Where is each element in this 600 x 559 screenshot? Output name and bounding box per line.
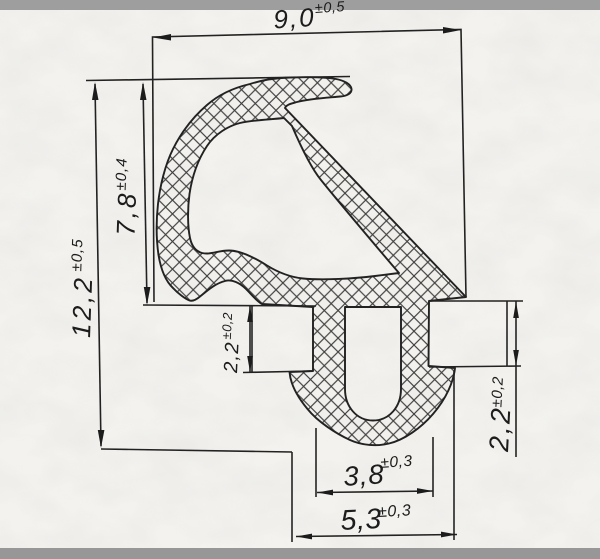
svg-text:2,2: 2,2 (483, 405, 516, 453)
svg-text:9,0: 9,0 (273, 2, 317, 35)
svg-text:±0,4: ±0,4 (113, 157, 131, 191)
svg-text:±0,2: ±0,2 (219, 312, 235, 340)
svg-text:±0,5: ±0,5 (314, 0, 345, 17)
svg-text:3,8: 3,8 (342, 458, 385, 492)
svg-text:±0,2: ±0,2 (488, 376, 507, 408)
svg-text:2,2: 2,2 (220, 341, 244, 375)
svg-text:12,2: 12,2 (66, 275, 98, 339)
svg-text:7,8: 7,8 (111, 190, 143, 236)
svg-text:±0,3: ±0,3 (380, 453, 413, 472)
svg-text:±0,5: ±0,5 (68, 238, 86, 272)
svg-text:±0,3: ±0,3 (378, 502, 412, 521)
svg-text:5,3: 5,3 (340, 503, 383, 537)
